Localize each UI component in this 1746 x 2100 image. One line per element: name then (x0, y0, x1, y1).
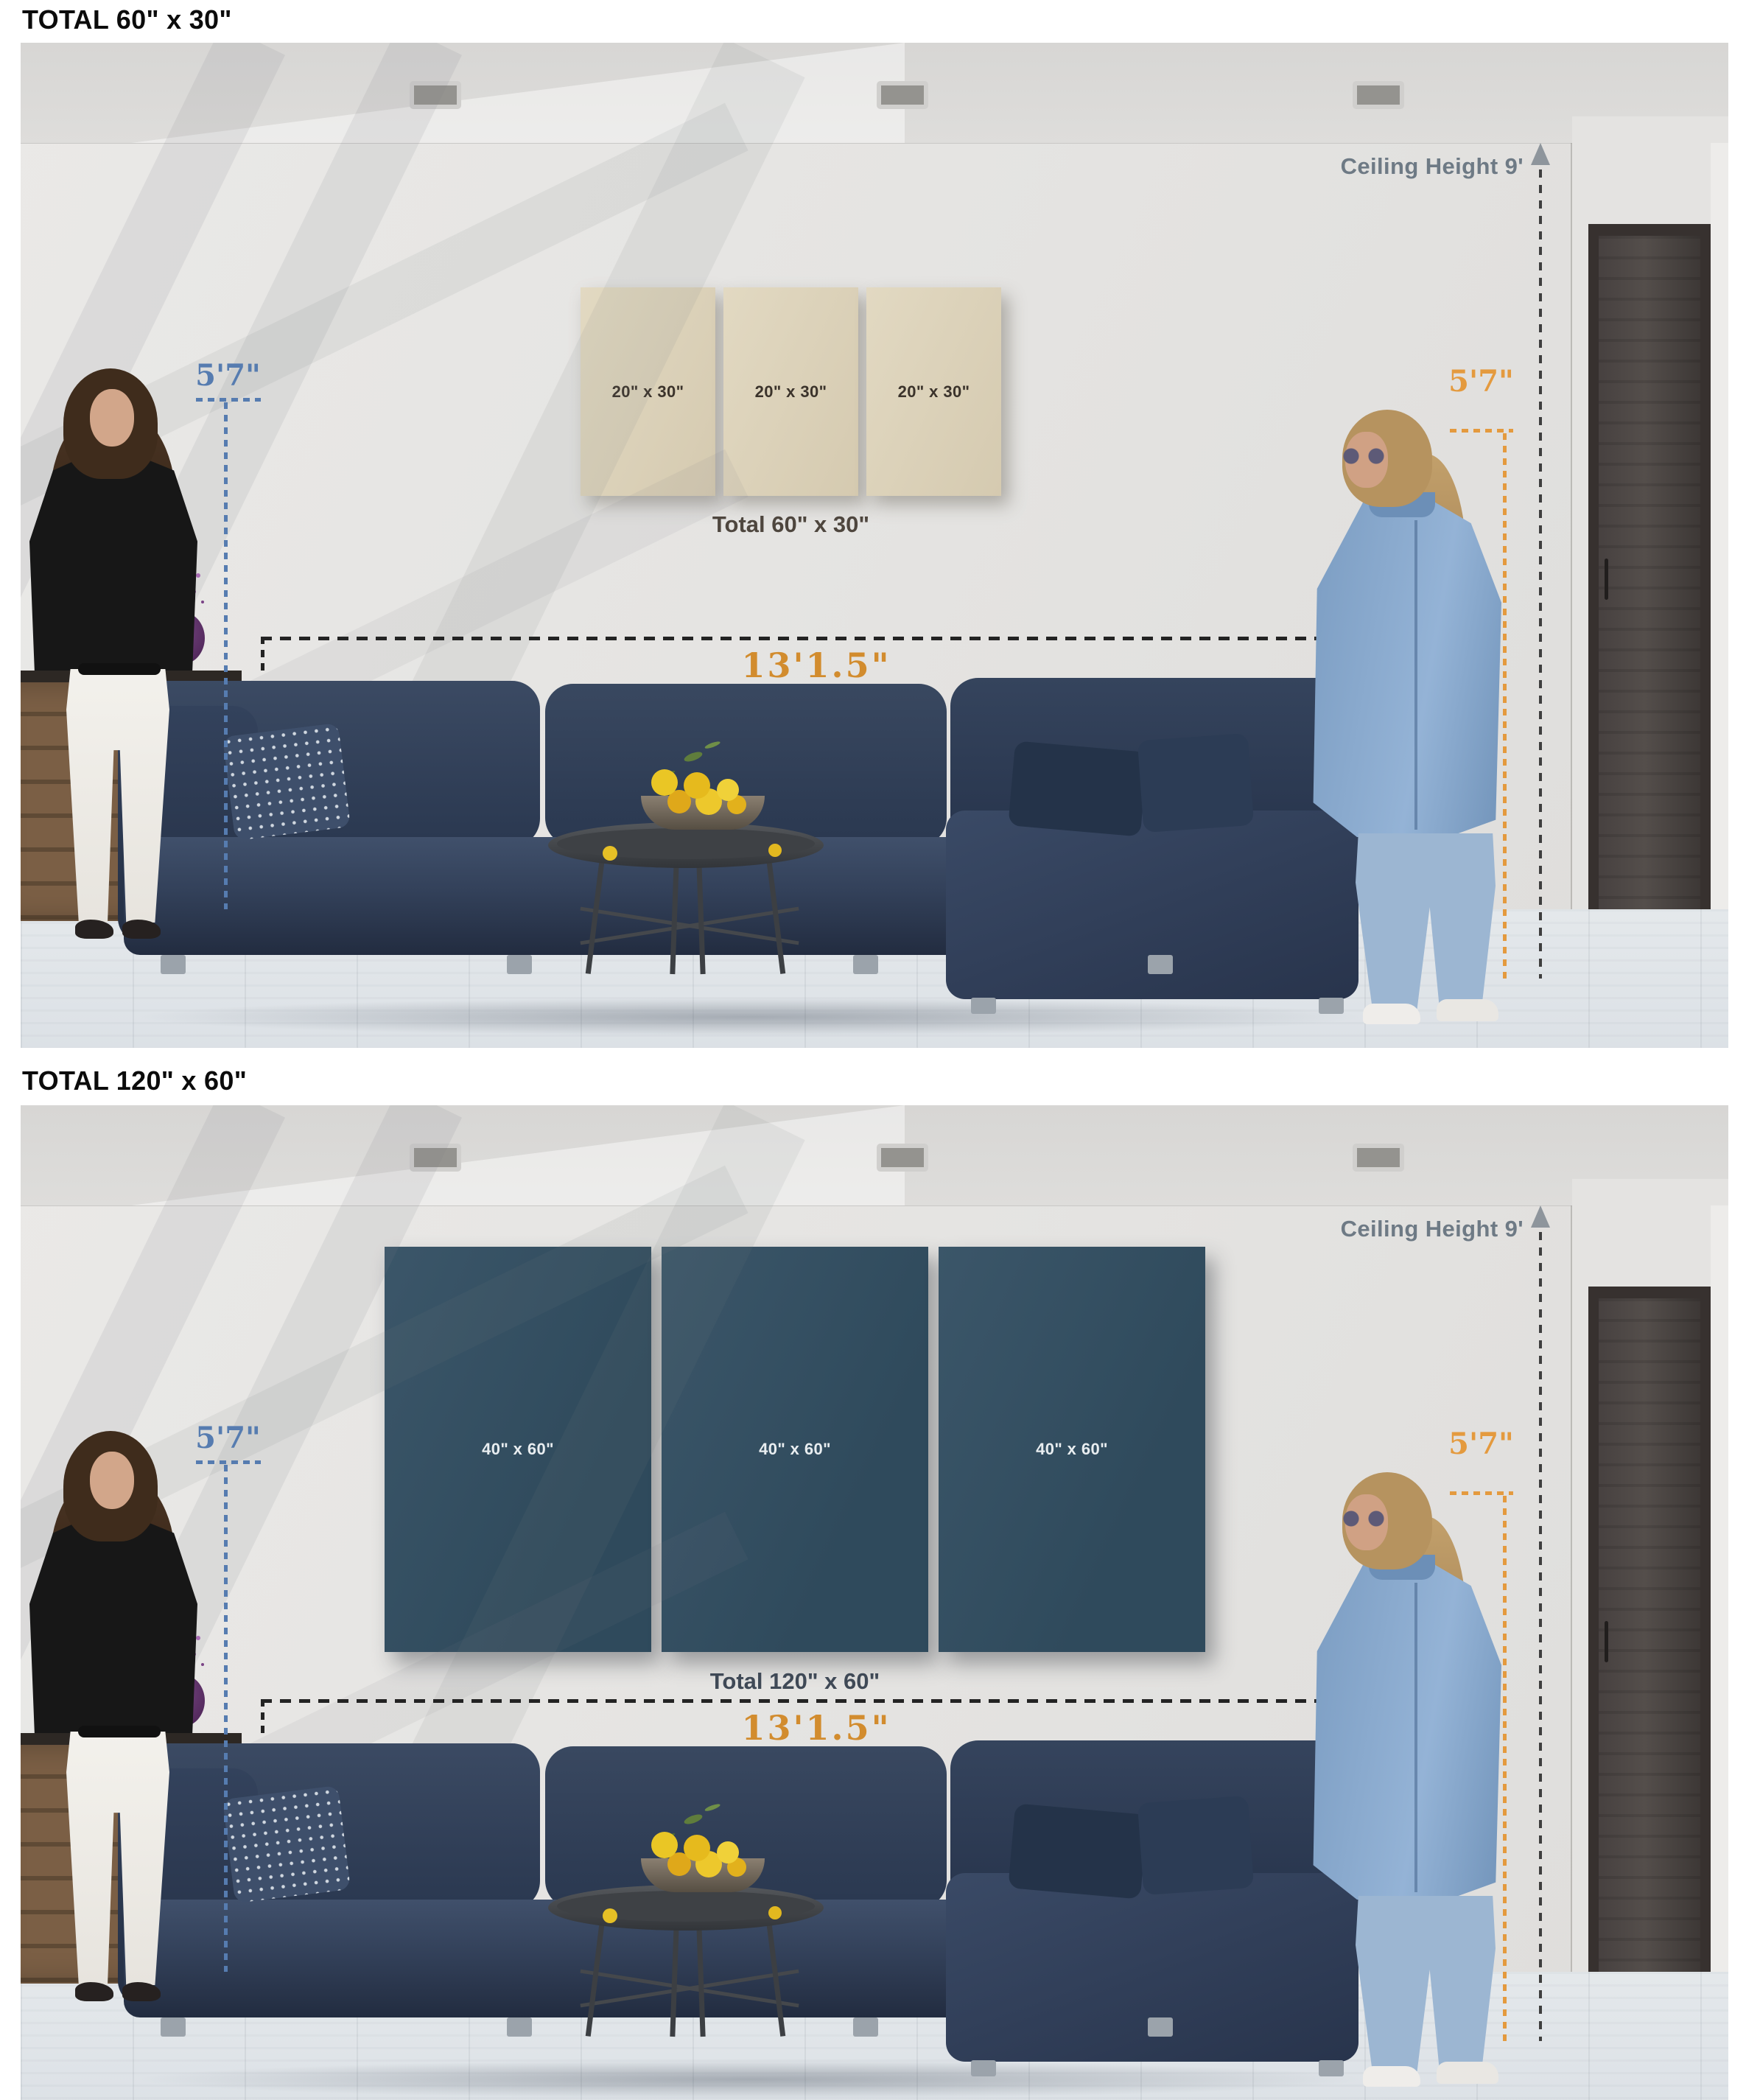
dashed-vertical-line (224, 1465, 228, 1972)
recessed-light (410, 1144, 461, 1172)
yellow-fruits (651, 1832, 678, 1858)
jacket-placket (1414, 1583, 1417, 1892)
height-label: 5'7" (1439, 1427, 1524, 1461)
sofa-leg (161, 2017, 186, 2037)
height-label: 5'7" (186, 358, 270, 393)
measure-end-tick (261, 637, 264, 673)
ceiling-height-dashed-line (1539, 169, 1542, 979)
sofa-leg (1148, 955, 1173, 974)
section-title-large: TOTAL 120" x 60" (22, 1065, 247, 1096)
dashed-segment (1450, 1491, 1513, 1495)
recessed-light (877, 81, 928, 109)
sofa-leg (507, 2017, 532, 2037)
door-handle (1605, 1621, 1608, 1662)
polka-dot-pillow (222, 723, 351, 841)
sneaker (1437, 999, 1498, 1021)
sunglasses (1339, 1511, 1388, 1527)
room-photo-large: 40" x 60" 40" x 60" 40" x 60" Total 120"… (21, 1105, 1728, 2100)
dashed-vertical-line (1503, 1496, 1507, 2047)
pillow (1137, 1796, 1254, 1895)
sofa-shadow (131, 998, 1369, 1036)
sofa-shadow (131, 2060, 1369, 2099)
ceiling-height-label: Ceiling Height 9' (1317, 1216, 1524, 1242)
belt (78, 1726, 161, 1737)
panel-size-label: 40" x 60" (759, 1440, 831, 1459)
sofa-leg (507, 955, 532, 974)
woman-right (1304, 1472, 1547, 2087)
black-top (29, 455, 197, 671)
woman-left (21, 368, 212, 946)
ceiling-height-label: Ceiling Height 9' (1317, 153, 1524, 180)
jeans (1356, 1896, 1496, 2071)
right-wall-edge (1711, 143, 1728, 956)
white-pants (66, 1732, 169, 1985)
sofa-leg (853, 2017, 878, 2037)
height-label: 5'7" (1439, 364, 1524, 399)
canvas-panel: 20" x 30" (723, 287, 858, 496)
fruit-bowl (641, 796, 765, 830)
polka-dot-pillow (222, 1785, 351, 1903)
up-arrow-icon (1531, 143, 1550, 165)
door-handle (1605, 559, 1608, 600)
canvas-panel-group: 20" x 30" 20" x 30" 20" x 30" (581, 287, 1001, 496)
canvas-panel-group: 40" x 60" 40" x 60" 40" x 60" (385, 1247, 1205, 1652)
white-pants (66, 669, 169, 923)
canvas-panel: 20" x 30" (581, 287, 715, 496)
panel-size-label: 20" x 30" (755, 382, 827, 402)
black-top (29, 1518, 197, 1733)
recessed-light (1353, 81, 1404, 109)
recessed-light (1353, 1144, 1404, 1172)
coffee-table-tray (557, 1891, 815, 1922)
sofa-width-label: 13'1.5" (706, 1708, 927, 1748)
sofa-leg (1148, 2017, 1173, 2037)
sneaker (1363, 2066, 1420, 2087)
denim-jacket (1311, 1555, 1501, 1900)
dashed-segment (1450, 429, 1513, 433)
recessed-light (410, 81, 461, 109)
sneaker (1437, 2062, 1498, 2084)
up-arrow-icon (1531, 1205, 1550, 1228)
panel-size-label: 40" x 60" (1036, 1440, 1108, 1459)
dashed-segment (196, 1460, 261, 1464)
total-size-label: Total 60" x 30" (581, 511, 1001, 538)
sofa-width-dashed-line (261, 637, 1325, 640)
height-label: 5'7" (186, 1421, 270, 1455)
yellow-fruits (651, 769, 678, 796)
total-size-label: Total 120" x 60" (385, 1668, 1205, 1695)
door (1599, 236, 1700, 914)
right-wall-edge (1711, 1205, 1728, 2019)
sofa-leg (853, 955, 878, 974)
coffee-table-tray (557, 828, 815, 859)
woman-left (21, 1431, 212, 2009)
dashed-segment (196, 398, 261, 402)
sofa-leg (971, 998, 996, 1014)
sneaker (1363, 1004, 1420, 1024)
canvas-panel: 40" x 60" (939, 1247, 1205, 1652)
sofa-leg (161, 955, 186, 974)
measure-end-tick (261, 1699, 264, 1736)
sunglasses (1339, 448, 1388, 464)
pillow (1008, 1803, 1147, 1899)
sofa-width-label: 13'1.5" (706, 645, 927, 685)
fruit-bowl (641, 1858, 765, 1892)
denim-jacket (1311, 492, 1501, 837)
canvas-panel: 20" x 30" (866, 287, 1001, 496)
canvas-panel: 40" x 60" (662, 1247, 928, 1652)
shoe (75, 920, 113, 939)
panel-size-label: 20" x 30" (898, 382, 970, 402)
belt (78, 663, 161, 675)
face (90, 389, 134, 447)
sofa-leg (971, 2060, 996, 2076)
woman-right (1304, 410, 1547, 1024)
dashed-vertical-line (224, 402, 228, 909)
jeans (1356, 833, 1496, 1009)
section-title-small: TOTAL 60" x 30" (22, 4, 232, 35)
door (1599, 1298, 1700, 1976)
jacket-placket (1414, 520, 1417, 830)
face (90, 1452, 134, 1509)
panel-size-label: 40" x 60" (482, 1440, 554, 1459)
ceiling-height-dashed-line (1539, 1232, 1542, 2041)
canvas-panel: 40" x 60" (385, 1247, 651, 1652)
panel-size-label: 20" x 30" (612, 382, 684, 402)
pillow (1137, 733, 1254, 833)
dashed-vertical-line (1503, 433, 1507, 984)
recessed-light (877, 1144, 928, 1172)
shoe (75, 1982, 113, 2001)
room-photo-small: 20" x 30" 20" x 30" 20" x 30" Total 60" … (21, 43, 1728, 1048)
sofa-width-dashed-line (261, 1699, 1325, 1703)
pillow (1008, 741, 1147, 836)
